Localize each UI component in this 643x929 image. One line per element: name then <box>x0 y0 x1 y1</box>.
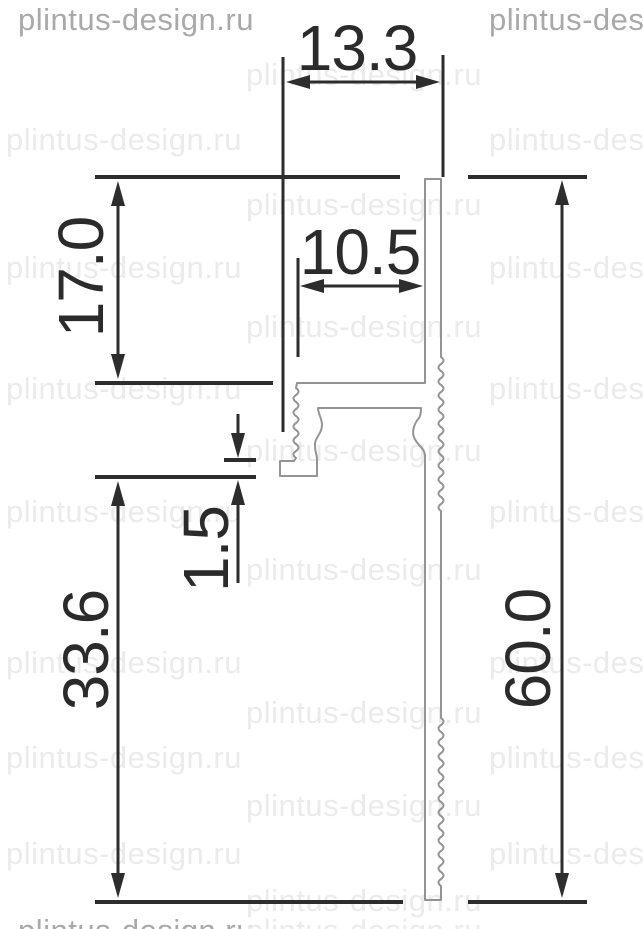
dimension-value: 33.6 <box>50 590 122 711</box>
dimension-value: 60.0 <box>492 589 564 710</box>
arrowhead-down <box>555 873 569 898</box>
arrowhead-up <box>111 181 125 206</box>
profile-drawing: 13.3 10.5 17.0 1.5 33 <box>0 0 643 929</box>
technical-drawing-page: plintus-design.ruplintus-design.ruplintu… <box>0 0 643 929</box>
dimension-value: 13.3 <box>297 12 418 84</box>
dimension-upper-height: 17.0 <box>45 181 125 379</box>
dimension-lip-thickness: 1.5 <box>170 414 245 592</box>
dimension-value: 10.5 <box>300 216 421 288</box>
dimension-top-width: 13.3 <box>286 12 440 89</box>
arrowhead-down <box>111 354 125 379</box>
arrowhead-up <box>111 481 125 506</box>
arrowhead-up <box>231 480 245 505</box>
dimension-lower-height: 33.6 <box>50 481 125 898</box>
dimension-value: 1.5 <box>170 506 242 592</box>
dimension-inner-width: 10.5 <box>300 216 423 293</box>
arrowhead-right <box>416 75 440 89</box>
arrowhead-down <box>111 873 125 898</box>
dimension-total-height: 60.0 <box>492 180 569 898</box>
arrowhead-up <box>555 180 569 205</box>
arrowhead-down <box>231 433 245 458</box>
dimension-value: 17.0 <box>45 217 117 338</box>
